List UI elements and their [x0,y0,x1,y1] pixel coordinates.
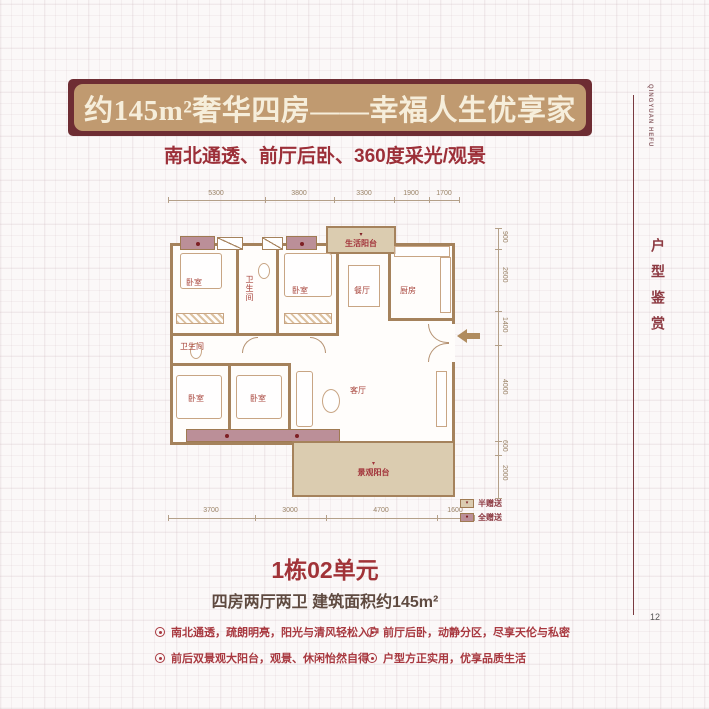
dim-label: 1900 [403,190,419,197]
dim-label: 3300 [356,190,372,197]
page-title: 约145m²奢华四房——幸福人生优享家 [84,87,576,129]
feature-item: 前后双景观大阳台，观景、休闲怡然自得 [155,650,369,666]
brand-line-1: QINGYUAN [647,84,653,124]
room-label-dining: 餐厅 [354,285,370,296]
feature-item: 户型方正实用，优享品质生活 [367,650,526,666]
dim-label: 4000 [501,379,508,395]
gift-dot [300,242,304,246]
room-label-living: 客厅 [350,385,366,396]
legend-label: 全赠送 [478,512,502,523]
feature-text: 户型方正实用，优享品质生活 [383,650,526,666]
dim-tick [265,197,266,203]
dim-tick [495,455,502,456]
coffee-table [322,389,340,413]
interior-wall [388,243,391,321]
feature-bullet-icon [155,653,165,663]
dim-label: 900 [501,231,508,243]
kitchen-counter [394,246,450,257]
room-label: 生活阳台 [345,238,377,249]
entry-arrow-icon [457,329,480,343]
page-number: 12 [650,612,660,622]
life-balcony: ▾ 生活阳台 [326,226,396,254]
floor-plan: 5300 3800 3300 1900 1700 3700 3000 4700 … [160,193,520,533]
dim-label: 2000 [501,465,508,481]
title-banner: 约145m²奢华四房——幸福人生优享家 [68,79,592,136]
wardrobe [176,313,224,324]
entry-door-gap [450,324,455,362]
dim-label: 4700 [373,507,389,514]
room-label-bathroom: 卫生间 [244,275,255,302]
dim-tick [495,228,502,229]
wardrobe [284,313,332,324]
interior-wall [388,318,455,321]
toilet [258,263,270,279]
dim-tick [437,515,438,521]
gift-dot [196,242,200,246]
dim-label: 3800 [291,190,307,197]
unit-name: 1栋02单元 [0,551,650,585]
interior-wall [236,243,239,335]
dim-label: 5300 [208,190,224,197]
sofa [296,371,313,427]
tv-cabinet [436,371,447,427]
kitchen-counter [440,257,451,313]
entry-arrow-head [457,329,467,343]
dim-label: 1700 [436,190,452,197]
room-label-bedroom: 卧室 [186,277,202,288]
feature-item: 前厅后卧，动静分区，尽享天伦与私密 [367,624,570,640]
dim-tick [394,197,395,203]
room-label-bedroom: 卧室 [188,393,204,404]
gift-dot [225,434,229,438]
dim-tick [495,249,502,250]
room-label-kitchen: 厨房 [400,285,416,296]
feature-item: 南北通透，疏朗明亮，阳光与清风轻松入户 [155,624,380,640]
view-balcony: ▾ 景观阳台 [292,441,455,497]
dim-line-bottom [168,518,475,519]
dim-label: 3000 [282,507,298,514]
gift-legend: ▾ 半赠送 ● 全赠送 [460,498,502,523]
window [217,237,243,250]
feature-bullet-icon [367,627,377,637]
dim-label: 3700 [203,507,219,514]
brand-line-2: HEFU [647,127,653,147]
dim-line-top [168,200,460,201]
feature-text: 前后双景观大阳台，观景、休闲怡然自得 [171,650,369,666]
bay-window-gift-zone [286,236,317,250]
unit-spec: 四房两厅两卫 建筑面积约145m² [0,588,650,612]
entry-arrow-tail [467,333,480,339]
dim-tick [255,515,256,521]
dim-label: 2600 [501,267,508,283]
dim-tick [495,311,502,312]
dim-tick [168,515,169,521]
dim-line-right [498,228,499,498]
interior-wall [276,243,279,335]
room-label-bathroom: 卫生间 [180,341,204,352]
dim-tick [168,197,169,203]
room-label-bedroom: 卧室 [250,393,266,404]
section-vertical-title: 户型鉴赏 [648,238,668,342]
brochure-page: 约145m²奢华四房——幸福人生优享家 南北通透、前厅后卧、360度采光/观景 … [0,0,709,709]
dim-label: 600 [501,440,508,452]
gift-dot [295,434,299,438]
legend-label: 半赠送 [478,498,502,509]
dim-tick [495,345,502,346]
dim-tick [334,197,335,203]
feature-bullet-icon [367,653,377,663]
window [262,237,283,250]
room-label: 景观阳台 [358,467,390,478]
feature-bullet-icon [155,627,165,637]
legend-row: ▾ 半赠送 [460,498,502,509]
dim-label: 1400 [501,317,508,333]
brand-english-text: QINGYUAN HEFU [646,84,654,147]
dim-tick [326,515,327,521]
selling-points-subtitle: 南北通透、前厅后卧、360度采光/观景 [0,141,650,168]
bay-window-gift-zone [180,236,215,250]
legend-swatch-full-gift: ● [460,513,474,522]
feature-text: 南北通透，疏朗明亮，阳光与清风轻松入户 [171,624,380,640]
legend-row: ● 全赠送 [460,512,502,523]
feature-text: 前厅后卧，动静分区，尽享天伦与私密 [383,624,570,640]
room-label-bedroom: 卧室 [292,285,308,296]
dim-tick [429,197,430,203]
interior-wall [172,363,291,366]
interior-wall [336,243,339,335]
interior-wall [172,333,339,336]
dim-tick [459,197,460,203]
title-banner-inner: 约145m²奢华四房——幸福人生优享家 [74,84,586,131]
side-divider-line [633,95,634,615]
legend-swatch-half-gift: ▾ [460,499,474,508]
